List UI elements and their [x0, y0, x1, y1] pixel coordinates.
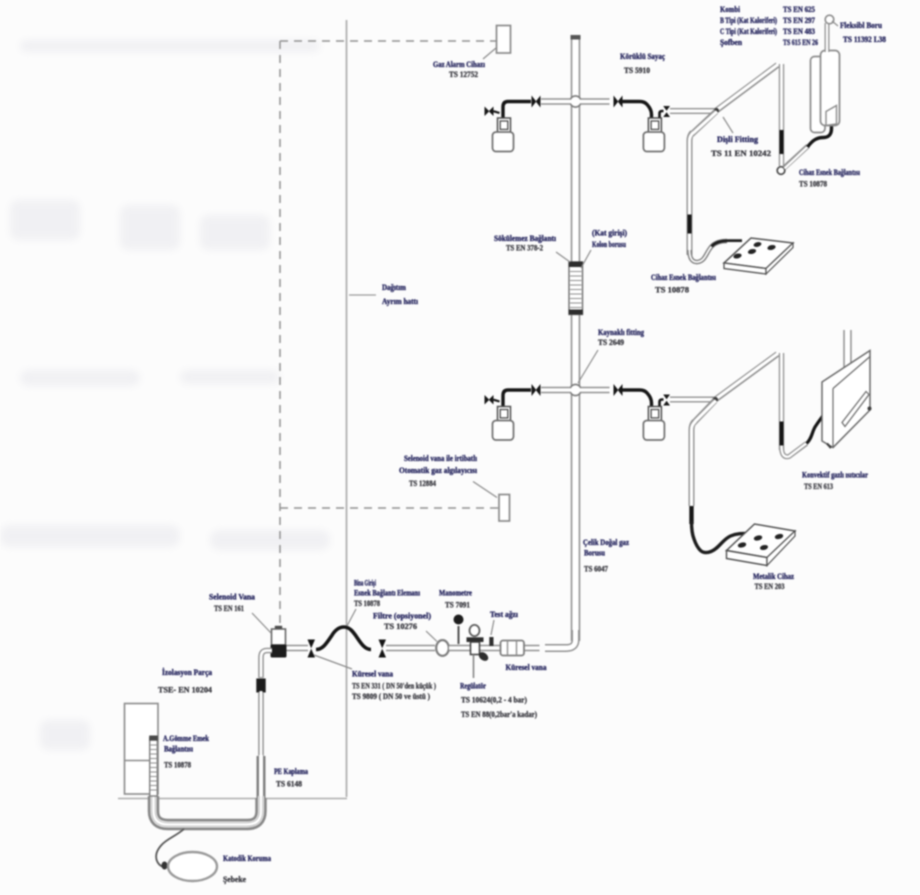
svg-text:Cihaz Esnek Bağlantısı: Cihaz Esnek Bağlantısı [799, 168, 861, 177]
svg-text:TS 10878: TS 10878 [164, 761, 191, 770]
svg-text:TS 10878: TS 10878 [354, 599, 380, 608]
svg-text:Esnek Bağlantı Elemanı: Esnek Bağlantı Elemanı [354, 589, 421, 598]
svg-text:Borusu: Borusu [584, 549, 605, 558]
svg-text:TSE- EN 10204: TSE- EN 10204 [158, 686, 212, 695]
svg-text:Kaynaklı fitting: Kaynaklı fitting [598, 328, 644, 337]
svg-text:B Tipi (Kat Kaloriferi): B Tipi (Kat Kaloriferi) [720, 16, 777, 25]
svg-text:TS EN 483: TS EN 483 [783, 27, 815, 36]
svg-text:TS EN 378-2: TS EN 378-2 [506, 244, 543, 253]
svg-text:Manometre: Manometre [439, 589, 472, 598]
svg-text:Kolon borusu: Kolon borusu [592, 240, 626, 249]
svg-text:TS 9809 ( DN 50 ve üstü ): TS 9809 ( DN 50 ve üstü ) [352, 692, 430, 701]
svg-text:Katodik Koruma: Katodik Koruma [223, 854, 271, 863]
svg-text:TS 7091: TS 7091 [445, 601, 470, 610]
svg-text:Dişli Fitting: Dişli Fitting [717, 135, 758, 144]
svg-text:Şebeke: Şebeke [223, 875, 246, 884]
svg-text:Metalik Cihaz: Metalik Cihaz [753, 572, 794, 581]
svg-text:Gaz Alarm Cihazı: Gaz Alarm Cihazı [433, 60, 486, 69]
svg-text:TS 11392 L38: TS 11392 L38 [843, 35, 886, 44]
svg-text:TS 6148: TS 6148 [276, 780, 302, 789]
svg-text:Şofben: Şofben [720, 38, 743, 47]
svg-text:TS 12884: TS 12884 [409, 479, 436, 488]
svg-text:Sökülemez Bağlantı: Sökülemez Bağlantı [494, 234, 557, 243]
svg-text:Çelik Doğal gaz: Çelik Doğal gaz [583, 538, 629, 547]
svg-text:TS 10276: TS 10276 [384, 622, 417, 631]
svg-text:TS EN 625: TS EN 625 [783, 5, 815, 14]
svg-text:Ayrım hattı: Ayrım hattı [382, 297, 419, 306]
svg-text:C Tipi (Kat Kaloriferi): C Tipi (Kat Kaloriferi) [720, 27, 777, 36]
svg-text:Bina Girişi: Bina Girişi [354, 579, 376, 588]
svg-text:Dağıtım: Dağıtım [382, 283, 406, 292]
svg-text:TS EN 161: TS EN 161 [214, 604, 244, 613]
svg-text:Kombi: Kombi [720, 5, 741, 14]
svg-text:Küresel vana: Küresel vana [352, 670, 393, 679]
svg-text:(Kat girişi): (Kat girişi) [592, 229, 627, 238]
svg-text:Konvektif gazlı ısıtıcılar: Konvektif gazlı ısıtıcılar [802, 471, 868, 480]
svg-text:TS 5910: TS 5910 [624, 66, 650, 75]
svg-text:Selenoid vana ile irtibatlı: Selenoid vana ile irtibatlı [404, 454, 478, 463]
svg-text:TS EN 297: TS EN 297 [783, 16, 815, 25]
svg-text:Bağlantısı: Bağlantısı [164, 745, 194, 754]
svg-text:PE Kaplama: PE Kaplama [274, 767, 308, 776]
svg-text:TS 10878: TS 10878 [655, 286, 689, 295]
svg-text:Filtre (opsiyonel): Filtre (opsiyonel) [373, 612, 431, 621]
svg-text:TS EN 88(0,2bar'a kadar): TS EN 88(0,2bar'a kadar) [461, 710, 537, 719]
svg-text:TS 12752: TS 12752 [449, 70, 478, 79]
svg-text:TS 615 EN 26: TS 615 EN 26 [783, 38, 818, 47]
svg-text:TS EN 331 ( DN 50'den küçük ): TS EN 331 ( DN 50'den küçük ) [352, 682, 436, 691]
svg-text:A.Gömme Emek: A.Gömme Emek [163, 734, 209, 743]
svg-text:Regülatör: Regülatör [460, 682, 486, 691]
svg-text:TS EN 613: TS EN 613 [804, 482, 833, 491]
svg-text:Körüklü Sayaç: Körüklü Sayaç [620, 52, 665, 61]
svg-text:Selenoid Vana: Selenoid Vana [209, 593, 255, 602]
svg-text:TS 10624(0,2 - 4 bar): TS 10624(0,2 - 4 bar) [461, 696, 527, 705]
svg-text:TS 10878: TS 10878 [799, 180, 827, 189]
svg-text:İzolasyon Parça: İzolasyon Parça [162, 667, 212, 677]
svg-text:Test ağzı: Test ağzı [490, 610, 519, 619]
svg-text:TS 2649: TS 2649 [598, 338, 624, 347]
svg-text:TS EN 203: TS EN 203 [755, 582, 785, 591]
svg-text:Fleksibl Boru: Fleksibl Boru [840, 21, 882, 30]
svg-text:Küresel vana: Küresel vana [506, 663, 547, 672]
svg-text:TS 11 EN 10242: TS 11 EN 10242 [711, 149, 771, 158]
svg-text:Cihaz Esnek Bağlantısı: Cihaz Esnek Bağlantısı [651, 273, 717, 282]
svg-text:TS 6047: TS 6047 [584, 565, 608, 574]
svg-text:Otomatik gaz algılayıcısı: Otomatik gaz algılayıcısı [399, 466, 478, 475]
